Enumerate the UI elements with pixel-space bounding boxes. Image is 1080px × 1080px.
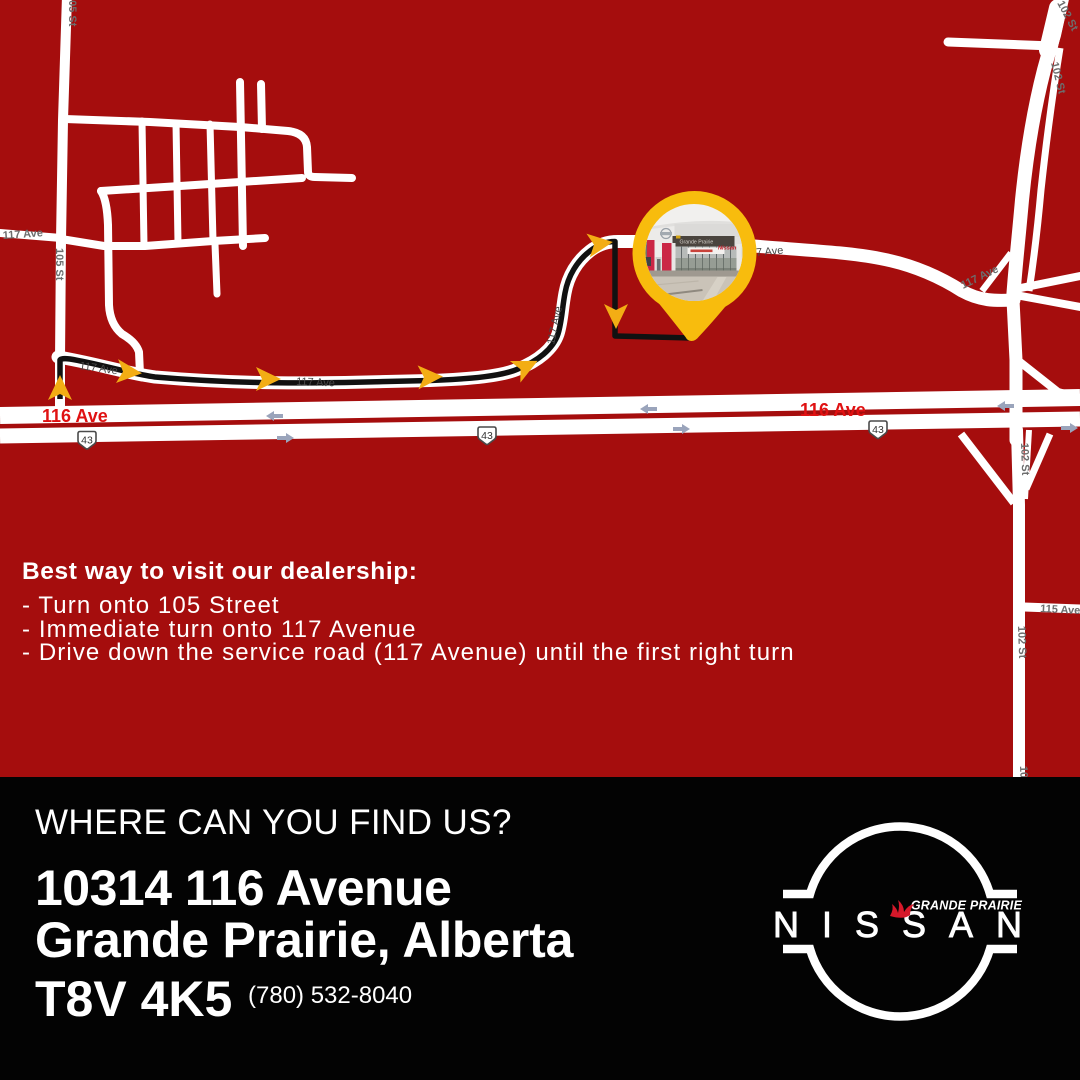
svg-text:105 St: 105 St	[66, 0, 78, 27]
svg-text:116 Ave: 116 Ave	[800, 400, 866, 420]
svg-text:116 Ave: 116 Ave	[42, 406, 108, 426]
svg-text:43: 43	[872, 424, 884, 436]
svg-text:105 St: 105 St	[53, 248, 65, 281]
svg-text:102 St: 102 St	[1017, 766, 1030, 777]
svg-text:Grande Prairie: Grande Prairie	[680, 240, 714, 246]
svg-text:GRANDE PRAIRIE: GRANDE PRAIRIE	[911, 899, 1023, 913]
svg-text:115 Ave: 115 Ave	[1040, 603, 1080, 617]
svg-text:43: 43	[481, 430, 493, 442]
svg-text:102 St: 102 St	[1015, 626, 1028, 659]
svg-text:117 Ave: 117 Ave	[296, 376, 335, 389]
svg-text:43: 43	[81, 434, 93, 446]
svg-text:102 St: 102 St	[1018, 443, 1031, 476]
svg-text:Nissan: Nissan	[718, 246, 737, 252]
